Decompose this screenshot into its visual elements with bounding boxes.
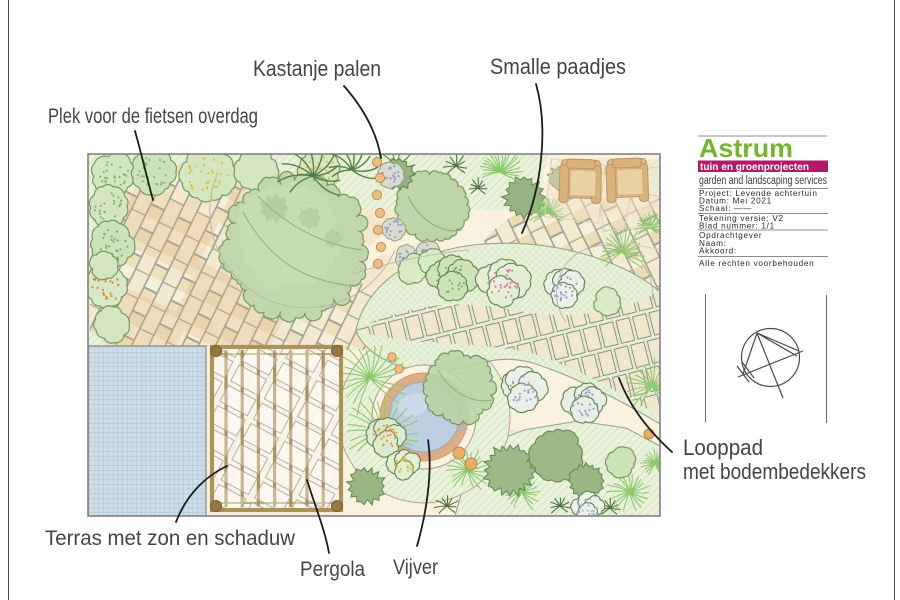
svg-text:Alle rechten voorbehouden: Alle rechten voorbehouden: [699, 259, 814, 268]
svg-text:Astrum: Astrum: [699, 133, 793, 163]
svg-text:met bodembedekkers: met bodembedekkers: [683, 459, 866, 484]
svg-text:Plek voor de fietsen overdag: Plek voor de fietsen overdag: [48, 105, 258, 128]
svg-text:tuin en groenprojecten: tuin en groenprojecten: [700, 161, 809, 173]
svg-text:garden and landscaping service: garden and landscaping services: [699, 175, 827, 187]
svg-text:Schaal: ——: Schaal: ——: [699, 204, 752, 213]
svg-text:Akkoord:: Akkoord:: [699, 247, 737, 256]
svg-text:Vijver: Vijver: [393, 556, 438, 579]
svg-text:Pergola: Pergola: [300, 558, 365, 581]
svg-text:Looppad: Looppad: [683, 435, 763, 460]
svg-text:Kastanje palen: Kastanje palen: [253, 56, 381, 81]
svg-text:Terras met zon en schaduw: Terras met zon en schaduw: [45, 527, 296, 550]
svg-text:Blad nummer: 1/1: Blad nummer: 1/1: [699, 222, 775, 231]
svg-text:Smalle paadjes: Smalle paadjes: [490, 54, 626, 79]
